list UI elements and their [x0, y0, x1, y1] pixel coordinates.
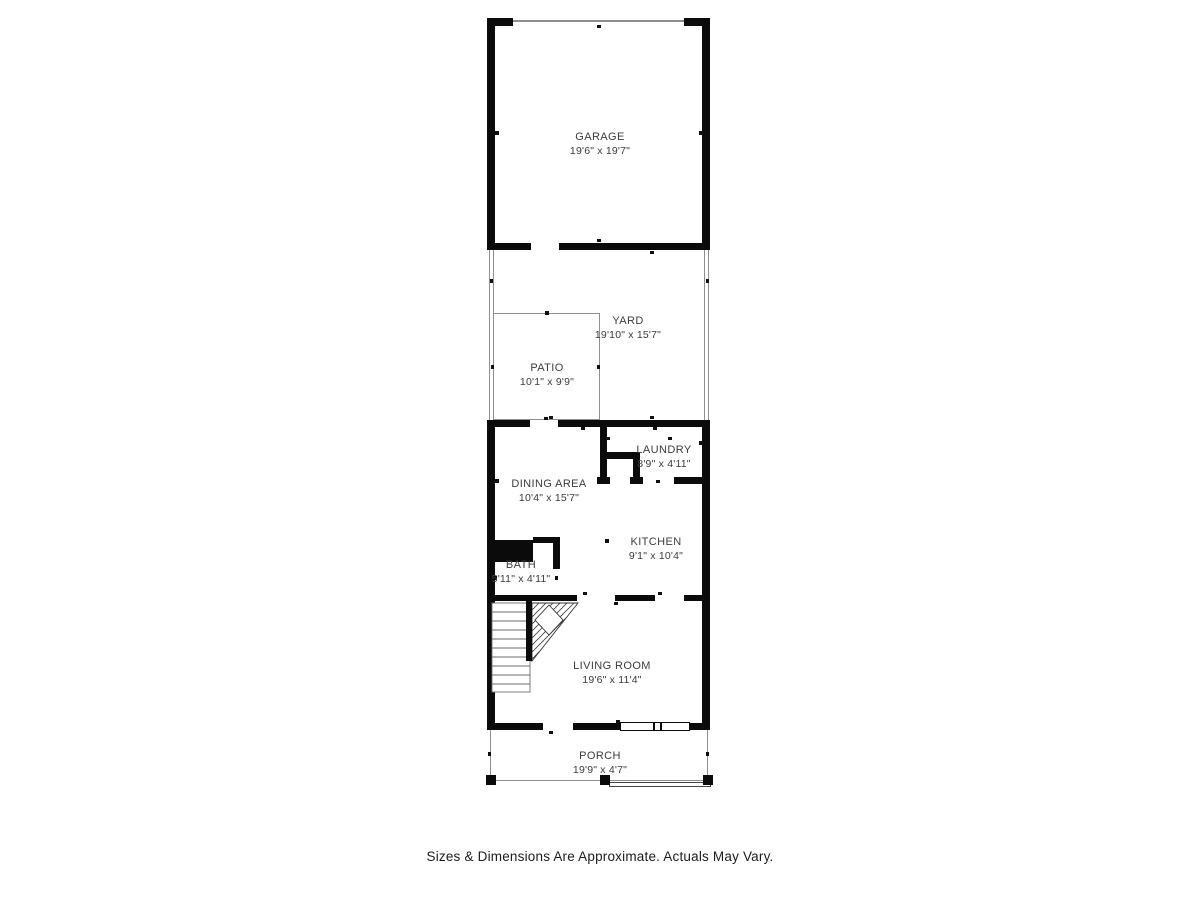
dimension-tick [653, 427, 657, 430]
dimension-tick [650, 251, 654, 254]
garage-bottom-wall-right [559, 243, 710, 250]
room-label-patio: PATIO 10'1" x 9'9" [520, 362, 574, 389]
dimension-tick [581, 427, 585, 430]
porch-step [609, 782, 711, 787]
room-name: GARAGE [570, 131, 630, 144]
dimension-tick [495, 479, 499, 483]
laundry-bottom-wall [674, 477, 702, 484]
yard-right-fence-line [708, 250, 709, 420]
yard-left-fence-line [489, 250, 490, 420]
garage-bottom-wall-left [487, 243, 531, 250]
laundry-left-wall [600, 427, 607, 478]
room-label-dining-area: DINING AREA 10'4" x 15'7" [511, 478, 586, 505]
stair-wall [526, 601, 532, 661]
dimension-tick [699, 131, 703, 135]
stair-run [492, 603, 530, 692]
garage-door-line [513, 20, 684, 22]
porch-bottom-line [490, 780, 708, 781]
laundry-closet-wall-h [607, 452, 640, 459]
room-name: KITCHEN [629, 536, 683, 549]
dimension-tick [490, 279, 493, 283]
room-dims: 19'6" x 11'4" [573, 674, 651, 687]
dimension-tick [488, 752, 491, 756]
dimension-tick [605, 539, 609, 543]
laundry-closet-wall-foot [630, 477, 643, 484]
room-dims: 19'10" x 15'7" [595, 329, 661, 342]
dimension-tick [549, 416, 553, 419]
dimension-tick [656, 480, 660, 483]
living-room-window [620, 722, 690, 731]
porch-post [486, 775, 496, 785]
living-bottom-wall-right [690, 723, 710, 730]
room-name: LIVING ROOM [573, 660, 651, 673]
dimension-tick [597, 25, 601, 28]
room-name: PORCH [573, 750, 627, 763]
room-dims: 8'9" x 4'11" [636, 458, 691, 471]
living-bottom-wall-left [487, 723, 543, 730]
dimension-tick [658, 592, 662, 595]
dimension-tick [706, 279, 709, 283]
living-top-wall-right [684, 595, 710, 601]
room-dims: 5'11" x 4'11" [492, 573, 551, 586]
dimension-tick [597, 365, 600, 369]
dimension-tick [616, 720, 620, 723]
room-dims: 19'6" x 19'7" [570, 145, 630, 158]
staircase [485, 594, 585, 696]
dimension-tick [544, 417, 548, 420]
house-right-wall [702, 420, 710, 730]
garage-left-wall [487, 18, 495, 250]
porch-post [703, 775, 713, 785]
room-name: LAUNDRY [636, 444, 691, 457]
dimension-tick [545, 311, 549, 315]
room-dims: 10'1" x 9'9" [520, 376, 574, 389]
room-label-living-room: LIVING ROOM 19'6" x 11'4" [573, 660, 651, 687]
dimension-tick [668, 437, 672, 440]
floor-plan: GARAGE 19'6" x 19'7" YARD 19'10" x 15'7"… [0, 0, 1200, 900]
bath-right-wall [553, 543, 560, 569]
room-name: YARD [595, 315, 661, 328]
house-top-wall-right [558, 420, 710, 427]
window-mullion [660, 722, 662, 731]
disclaimer-text: Sizes & Dimensions Are Approximate. Actu… [0, 849, 1200, 864]
dimension-tick [495, 131, 499, 135]
room-dims: 19'9" x 4'7" [573, 764, 627, 777]
window-mullion [653, 722, 655, 731]
living-bottom-wall-mid [573, 723, 620, 730]
dimension-tick [549, 731, 553, 734]
dimension-tick [597, 239, 601, 242]
dimension-tick [650, 416, 654, 419]
room-label-yard: YARD 19'10" x 15'7" [595, 315, 661, 342]
room-label-kitchen: KITCHEN 9'1" x 10'4" [629, 536, 683, 563]
yard-right-fence-line [704, 250, 705, 420]
room-name: BATH [492, 559, 551, 572]
room-name: PATIO [520, 362, 574, 375]
dimension-tick [555, 576, 558, 580]
room-label-laundry: LAUNDRY 8'9" x 4'11" [636, 444, 691, 471]
dimension-tick [606, 437, 610, 440]
laundry-left-wall-foot [597, 477, 610, 484]
dimension-tick [614, 602, 618, 605]
dimension-tick [706, 752, 709, 756]
living-top-wall-mid [615, 595, 655, 601]
room-label-garage: GARAGE 19'6" x 19'7" [570, 131, 630, 158]
dimension-tick [491, 365, 494, 369]
dimension-tick [699, 441, 703, 445]
room-label-porch: PORCH 19'9" x 4'7" [573, 750, 627, 777]
garage-right-wall [702, 18, 710, 250]
room-name: DINING AREA [511, 478, 586, 491]
room-label-bath: BATH 5'11" x 4'11" [492, 559, 551, 586]
room-dims: 9'1" x 10'4" [629, 550, 683, 563]
room-dims: 10'4" x 15'7" [511, 492, 586, 505]
